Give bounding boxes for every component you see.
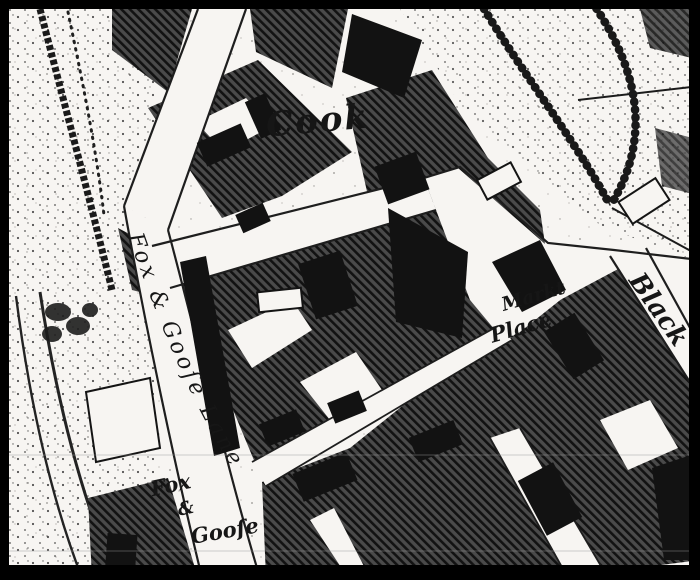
frame-top [0, 0, 700, 9]
map-canvas: Cook Fox & Gooſe Lane Fox & Gooſe Markt … [0, 0, 700, 580]
tree-blob [82, 303, 98, 317]
tree-blob [45, 303, 71, 321]
tree-blob [66, 317, 90, 335]
frame-bottom [0, 565, 700, 580]
building-outlined [257, 288, 303, 312]
frame-right [689, 0, 700, 580]
building-outlined-courtyard [86, 378, 160, 462]
tree-blob [42, 326, 62, 342]
frame-left [0, 0, 9, 580]
historical-map-scan: Cook Fox & Gooſe Lane Fox & Gooſe Markt … [0, 0, 700, 580]
